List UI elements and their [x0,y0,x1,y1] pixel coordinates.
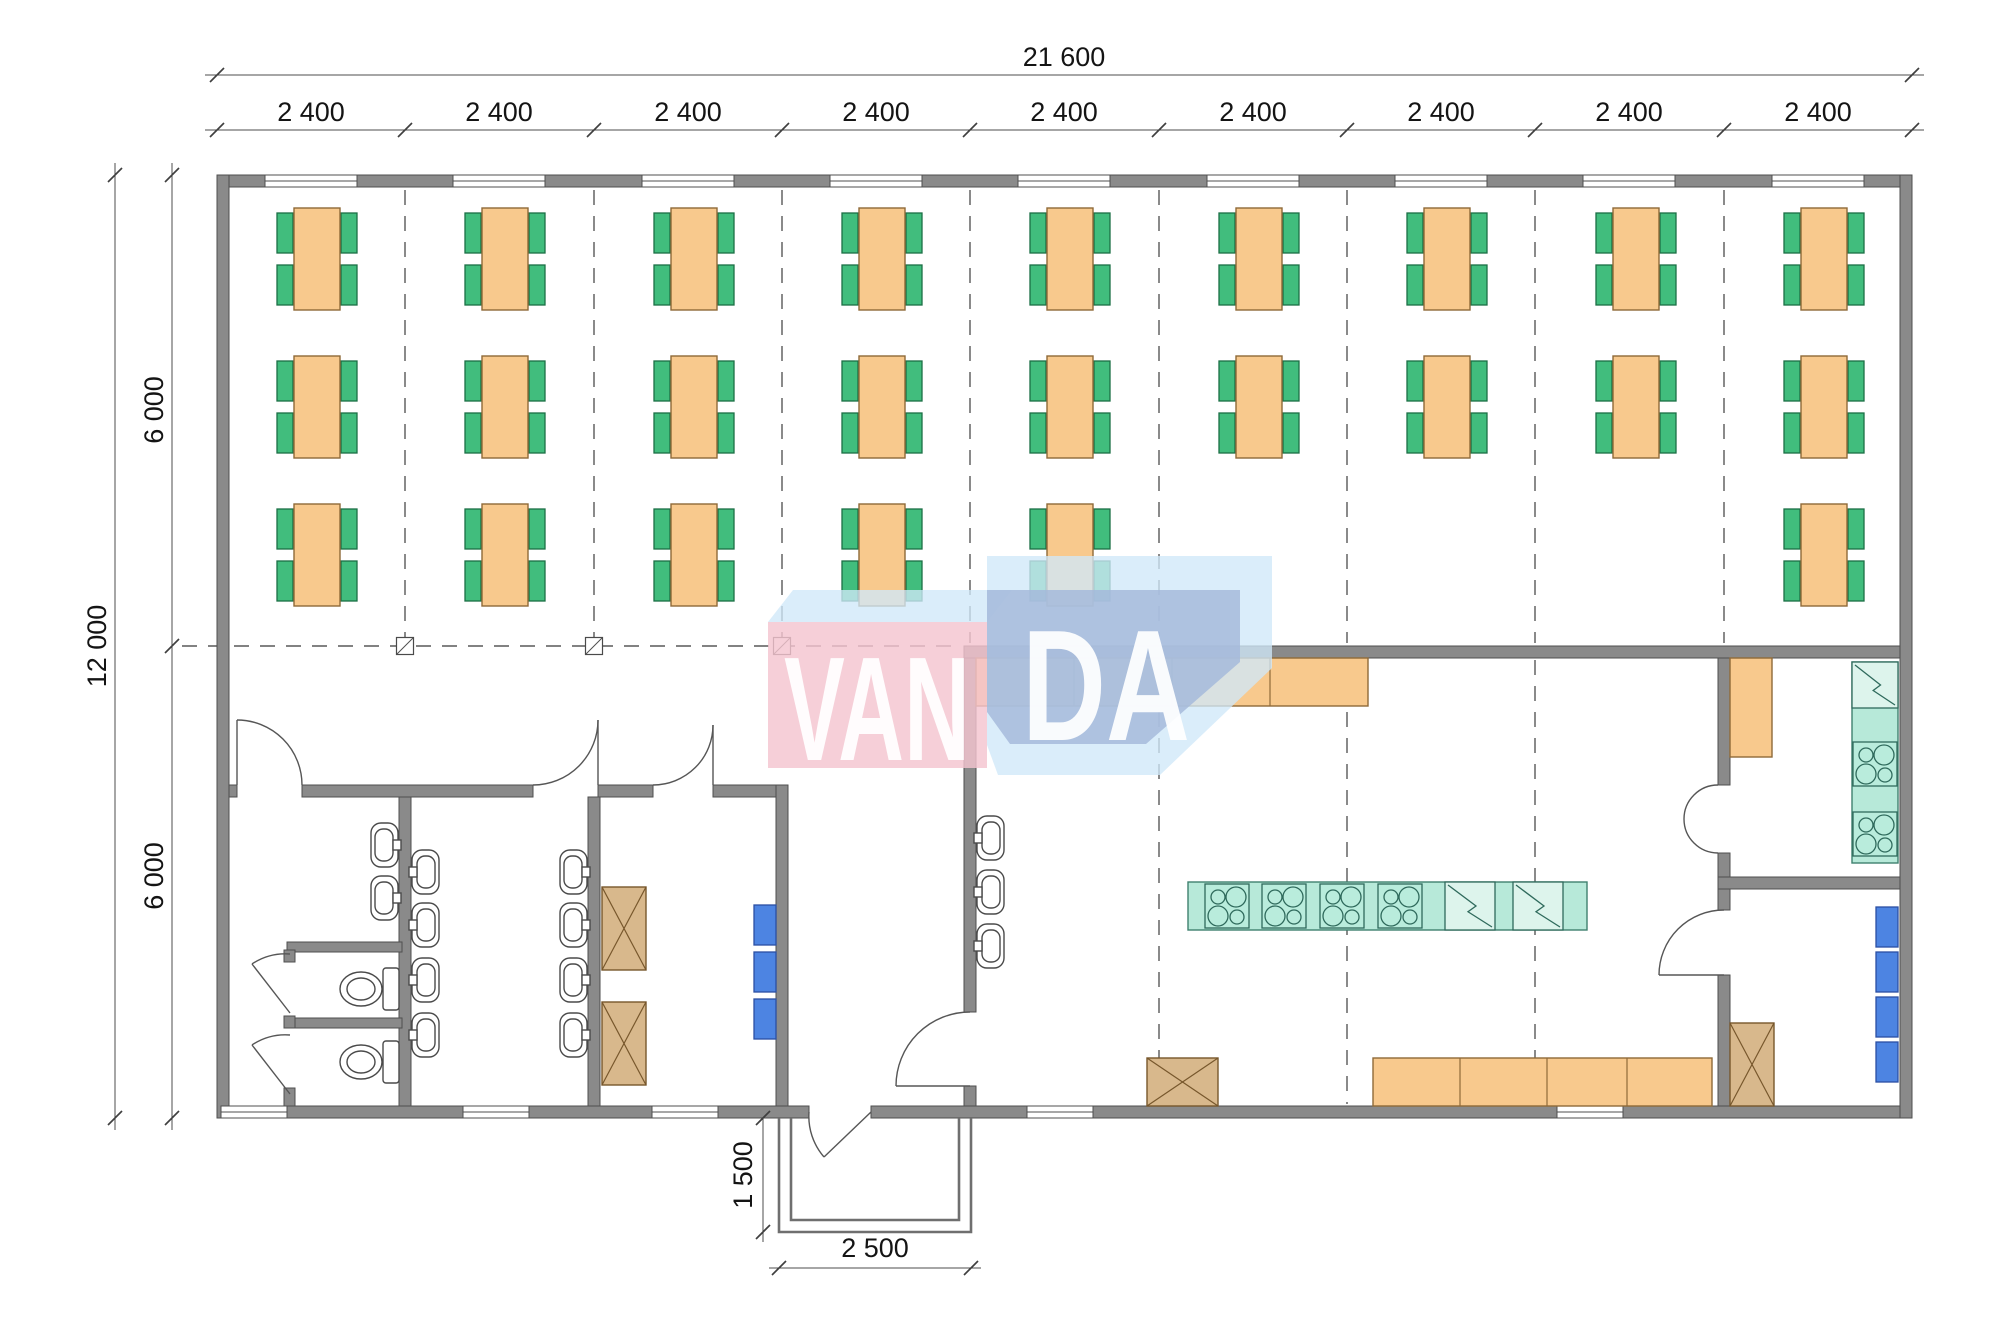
chair [341,361,357,401]
stove-icon [1262,884,1306,928]
sink-bowl [982,876,1000,908]
dining-table-group [1407,356,1487,458]
watermark-top-face [768,590,1012,622]
table [1801,356,1847,458]
wall-left [217,175,229,1118]
dim-overall-width: 21 600 [1023,42,1106,72]
chair [1784,213,1800,253]
chair [465,265,481,305]
dim-bay-label: 2 400 [277,97,345,127]
watermark-text-left: VAN [784,627,970,792]
sink-bowl [417,909,435,941]
dining-table-group [654,208,734,310]
stove-icon [1320,884,1364,928]
chair [529,561,545,601]
chair [341,413,357,453]
fridge-body [1513,882,1563,930]
chair [465,413,481,453]
chair [1471,265,1487,305]
locker [754,952,776,992]
chair [1094,509,1110,549]
dining-table-group [465,356,545,458]
chair [906,361,922,401]
storage-box [1730,1023,1774,1106]
storage-box [602,887,646,970]
dining-table-group [654,504,734,606]
dim-bay-label: 2 400 [1219,97,1287,127]
sink-bowl [564,909,582,941]
chair [1471,213,1487,253]
toilet-icon [340,968,399,1010]
chair [465,361,481,401]
chair [1094,265,1110,305]
sink-bowl [417,856,435,888]
table [859,356,905,458]
sink-icon [409,850,439,894]
chair [1283,361,1299,401]
dining-table-group [654,356,734,458]
dining-table-group [842,208,922,310]
chair [906,509,922,549]
chair [1030,213,1046,253]
locker [1876,907,1898,947]
dim-bay-label: 2 400 [654,97,722,127]
fridge-body [1445,882,1495,930]
sink-bowl [564,1019,582,1051]
chair [842,265,858,305]
dim-seg-label: 6 000 [139,376,169,444]
dim-porch-width: 2 500 [841,1233,909,1263]
chair [1660,265,1676,305]
chair [529,509,545,549]
chair [1660,413,1676,453]
table [294,356,340,458]
chair [842,361,858,401]
chair [842,413,858,453]
dim-bay-label: 2 400 [1784,97,1852,127]
sink-tap [974,941,982,951]
chair [1596,361,1612,401]
sink-tap [582,867,590,877]
chair [1471,361,1487,401]
dining-table-group [1030,208,1110,310]
chair [1471,413,1487,453]
sink-tap [974,887,982,897]
locker [1876,952,1898,992]
chair [1660,213,1676,253]
chair [1784,561,1800,601]
sink-icon [560,903,590,947]
dining-tables [277,208,1864,606]
locker [1876,997,1898,1037]
chair [529,265,545,305]
table [1424,356,1470,458]
chair [1596,265,1612,305]
chair [718,265,734,305]
sink-tap [409,975,417,985]
chair [1848,265,1864,305]
toilet-tank [383,968,399,1010]
watermark-text-right: DA [1022,598,1190,774]
chair [277,413,293,453]
chair [341,561,357,601]
dim-bay-label: 2 400 [465,97,533,127]
table [1236,356,1282,458]
dining-table-group [1596,208,1676,310]
chair [1784,509,1800,549]
chair [341,265,357,305]
sink-icon [409,1013,439,1057]
chair [718,361,734,401]
vanda-watermark: VAN DA [768,556,1272,792]
chair [1219,361,1235,401]
table [859,208,905,310]
chair [1094,361,1110,401]
chair [842,509,858,549]
chair [1219,213,1235,253]
dining-table-group [465,208,545,310]
chair [1283,213,1299,253]
chair [1030,265,1046,305]
chair [654,561,670,601]
chair [465,509,481,549]
sink-bowl [982,822,1000,854]
chair [341,509,357,549]
table [482,356,528,458]
table [1047,356,1093,458]
chair [529,213,545,253]
sink-bowl [375,882,393,914]
fridge-icon [1513,882,1563,930]
table [1424,208,1470,310]
sink-tap [582,975,590,985]
table [1047,208,1093,310]
fridge-body [1852,662,1898,708]
chair [842,213,858,253]
sink-bowl [982,930,1000,962]
sink-tap [393,840,401,850]
chair [906,213,922,253]
dining-table-group [1784,356,1864,458]
floor-plan-canvas: 2 4002 4002 4002 4002 4002 4002 4002 400… [0,0,2000,1338]
stove-icon [1853,812,1897,856]
chair [277,265,293,305]
chair [529,361,545,401]
table [294,504,340,606]
chair [1219,265,1235,305]
chair [1407,265,1423,305]
dining-table-group [465,504,545,606]
sink-tap [393,893,401,903]
table [1236,208,1282,310]
chair [1407,413,1423,453]
dining-table-group [1407,208,1487,310]
dining-table-group [1030,356,1110,458]
locker [1876,1042,1898,1082]
dim-bay-label: 2 400 [1595,97,1663,127]
sink-icon [560,850,590,894]
toilet-tank [383,1041,399,1083]
wall-right [1900,175,1912,1118]
chair [465,561,481,601]
chair [1283,413,1299,453]
table [671,356,717,458]
locker [754,999,776,1039]
chair [718,213,734,253]
sink-bowl [564,856,582,888]
table [482,208,528,310]
chair [1030,361,1046,401]
dining-table-group [1784,208,1864,310]
chair [1030,509,1046,549]
table [1801,504,1847,606]
chair [654,413,670,453]
floor-plan-drawing: 2 4002 4002 4002 4002 4002 4002 4002 400… [0,0,2000,1338]
chair [906,265,922,305]
chair [654,213,670,253]
stove-icon [1205,884,1249,928]
table [671,504,717,606]
chair [718,509,734,549]
chair [529,413,545,453]
sink-tap [409,1030,417,1040]
chair [1030,413,1046,453]
dim-bay-label: 2 400 [842,97,910,127]
dining-table-group [1596,356,1676,458]
chair [1407,213,1423,253]
sink-icon [974,816,1004,860]
sink-icon [371,876,401,920]
chair [341,213,357,253]
chair [1784,361,1800,401]
table [1613,356,1659,458]
sink-bowl [417,964,435,996]
table [1801,208,1847,310]
dining-table-group [1219,208,1299,310]
dim-overall-height: 12 000 [82,605,112,688]
toilet-bowl-inner [347,978,375,1000]
dining-table-group [1219,356,1299,458]
chair [1596,413,1612,453]
fridge-icon [1445,882,1495,930]
chair [277,509,293,549]
dining-table-group [277,208,357,310]
sink-tap [582,920,590,930]
sink-tap [409,867,417,877]
chair [1784,265,1800,305]
sink-bowl [375,829,393,861]
table [482,504,528,606]
sink-bowl [417,1019,435,1051]
toilet-bowl-inner [347,1051,375,1073]
chair [1784,413,1800,453]
chair [277,213,293,253]
table [671,208,717,310]
dining-table-group [842,356,922,458]
fridge-icon [1852,662,1898,708]
chair [1848,509,1864,549]
chair [718,413,734,453]
storage-box [1147,1058,1218,1106]
dim-porch-depth: 1 500 [728,1141,758,1209]
sink-icon [560,958,590,1002]
counter [1373,1058,1712,1106]
sink-tap [409,920,417,930]
dining-table-group [1784,504,1864,606]
chair [1283,265,1299,305]
sink-tap [974,833,982,843]
stove-icon [1378,884,1422,928]
table [294,208,340,310]
dim-bay-label: 2 400 [1407,97,1475,127]
chair [1848,413,1864,453]
chair [654,509,670,549]
dining-table-group [277,356,357,458]
chair [1219,413,1235,453]
chair [1848,561,1864,601]
sink-icon [409,958,439,1002]
chair [1660,361,1676,401]
toilet-icon [340,1041,399,1083]
chair [1848,213,1864,253]
sink-tap [582,1030,590,1040]
chair [1094,213,1110,253]
table [1613,208,1659,310]
sink-icon [974,924,1004,968]
dining-table-group [277,504,357,606]
storage-box [602,1002,646,1085]
sink-bowl [564,964,582,996]
sink-icon [560,1013,590,1057]
stove-icon [1853,742,1897,786]
chair [906,413,922,453]
counter [1730,658,1772,757]
chair [1094,413,1110,453]
locker [754,905,776,945]
sink-icon [409,903,439,947]
chair [277,361,293,401]
chair [1596,213,1612,253]
sink-icon [371,823,401,867]
entrance-porch [779,1118,971,1232]
sink-icon [974,870,1004,914]
dim-seg-label: 6 000 [139,842,169,910]
chair [1848,361,1864,401]
chair [465,213,481,253]
dim-bay-label: 2 400 [1030,97,1098,127]
chair [718,561,734,601]
chair [654,361,670,401]
chair [277,561,293,601]
sanitary-fixtures [340,816,1004,1083]
chair [1407,361,1423,401]
chair [654,265,670,305]
